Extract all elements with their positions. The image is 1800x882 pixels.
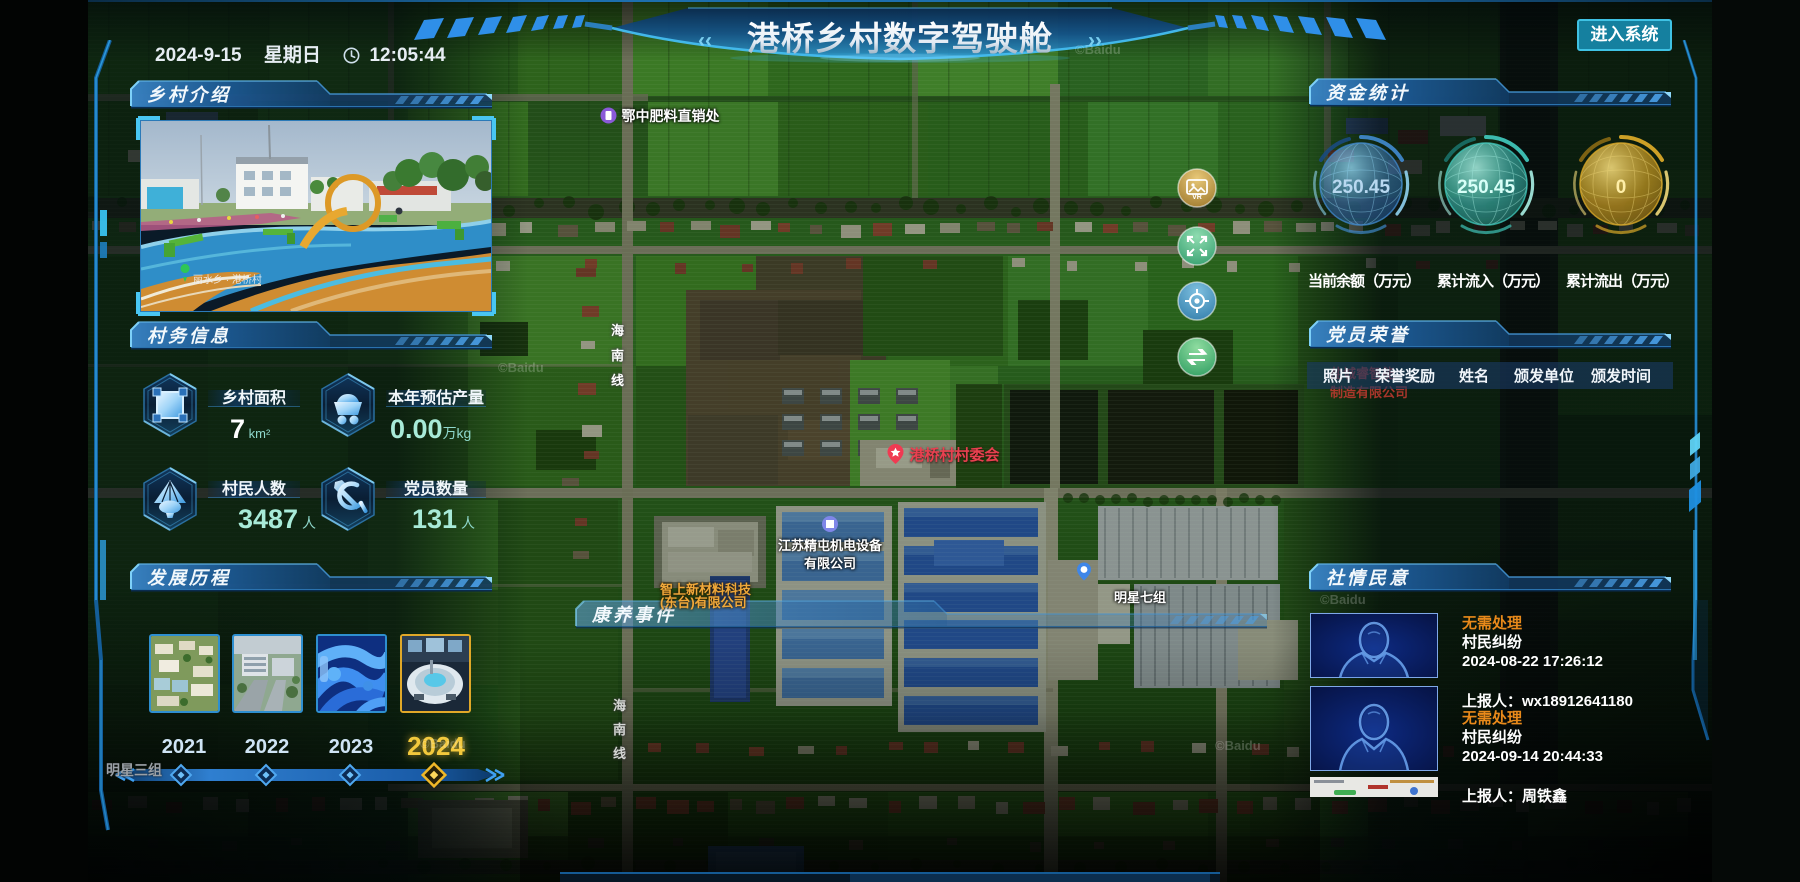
svg-text:250.45: 250.45 xyxy=(1332,177,1391,198)
svg-text:党员荣誉: 党员荣誉 xyxy=(1326,325,1410,345)
svg-text:0: 0 xyxy=(1616,177,1627,198)
svg-text:资金统计: 资金统计 xyxy=(1326,83,1410,103)
svg-text:社情民意: 社情民意 xyxy=(1326,568,1410,588)
svg-text:250.45: 250.45 xyxy=(1457,177,1516,198)
